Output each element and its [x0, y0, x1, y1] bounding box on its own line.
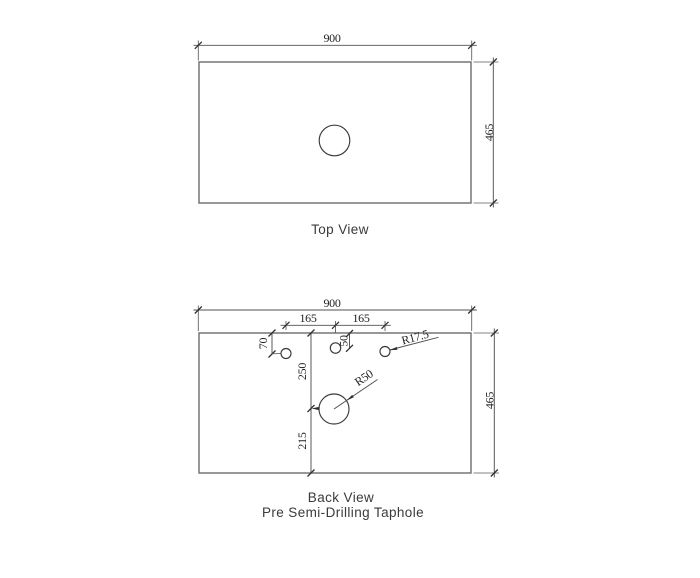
hole-spacing-right-value: 165	[352, 311, 369, 325]
back-view-width-value: 900	[323, 296, 340, 310]
back-view-height-dimension: 465	[474, 329, 500, 478]
top-view-outline	[199, 62, 471, 203]
main-hole-to-top-value: 250	[295, 363, 309, 380]
hole-spacing-left-value: 165	[299, 311, 316, 325]
top-view-label: Top View	[311, 222, 369, 237]
hole-spacing-dimension: 165 165	[281, 311, 391, 333]
main-hole-to-bottom-value: 215	[295, 432, 309, 449]
top-view-width-dimension: 900	[194, 31, 477, 61]
left-hole-offset-value: 70	[256, 338, 270, 350]
top-view-width-value: 900	[323, 31, 340, 45]
back-view-outline	[199, 333, 471, 473]
drawing-sheet: 900 465 Top View 900	[0, 0, 700, 578]
top-view-height-value: 465	[482, 124, 496, 141]
back-view: 900 465 165 165	[194, 296, 500, 520]
top-view: 900 465 Top View	[194, 31, 499, 237]
back-view-height-value: 465	[483, 392, 497, 409]
back-view-subtitle: Pre Semi-Drilling Taphole	[262, 505, 424, 520]
technical-drawing: 900 465 Top View 900	[0, 0, 700, 578]
back-view-label: Back View	[308, 490, 374, 505]
top-view-height-dimension: 465	[474, 58, 499, 208]
center-hole-offset-value: 50	[337, 335, 351, 347]
